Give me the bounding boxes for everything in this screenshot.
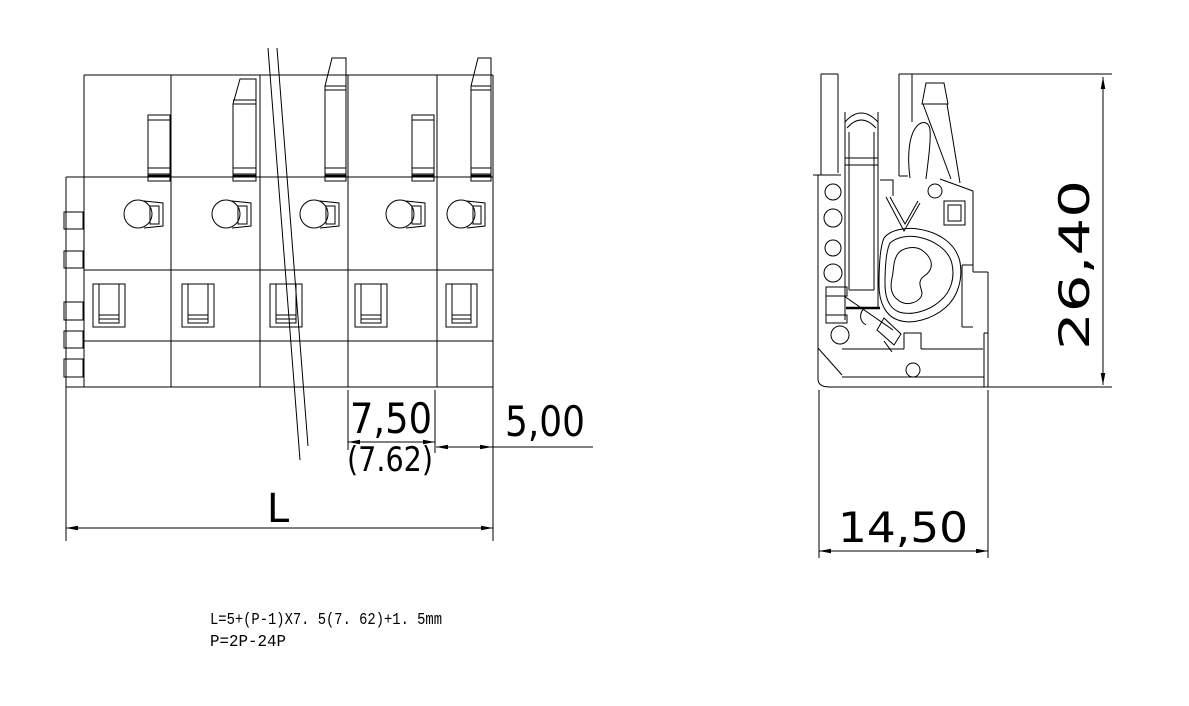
drawing-notes: L=5+(P-1)X7. 5(7. 62)+1. 5mm P=2P-24P [210,611,442,652]
dim-label-pitch: 7,50 [350,394,432,443]
dim-label-end-margin: 5,00 [505,397,585,446]
dim-label-width: 14,50 [838,503,968,552]
front-wire-slots [93,284,477,327]
side-holes [824,184,942,377]
dim-label-height: 26,40 [1050,180,1099,350]
note-pole-range: P=2P-24P [210,633,286,652]
side-release-lever [826,287,901,352]
technical-drawing-page: 7,50 (7.62) 5,00 L 26,40 14 [0,0,1189,706]
note-length-formula: L=5+(P-1)X7. 5(7. 62)+1. 5mm [210,611,442,630]
break-lines [268,48,308,460]
front-view-dimensions: 7,50 (7.62) 5,00 L [66,390,593,532]
dim-label-total-length: L [267,486,290,532]
side-spring-bend [886,197,920,231]
dim-label-pitch-inch: (7.62) [347,440,433,480]
front-screw-clamps [124,200,485,228]
front-latch-tabs [148,58,491,181]
side-latch-finger [909,123,931,179]
side-wire-tube [845,112,893,320]
side-clamp-cage [879,228,961,321]
front-strip-notches [64,212,83,377]
terminal-block-drawing: 7,50 (7.62) 5,00 L 26,40 14 [0,0,1189,706]
